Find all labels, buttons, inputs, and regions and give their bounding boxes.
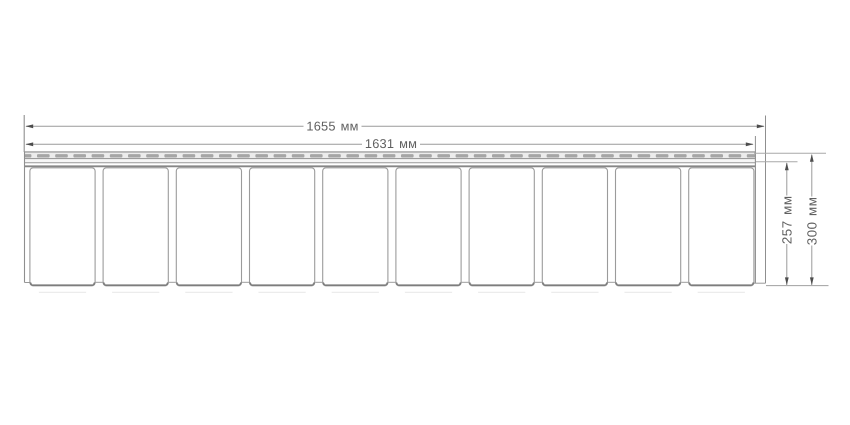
svg-text:300 мм: 300 мм bbox=[804, 197, 819, 246]
svg-text:257 мм: 257 мм bbox=[779, 195, 794, 244]
svg-text:1631 мм: 1631 мм bbox=[365, 136, 417, 151]
svg-text:1655 мм: 1655 мм bbox=[306, 118, 358, 133]
